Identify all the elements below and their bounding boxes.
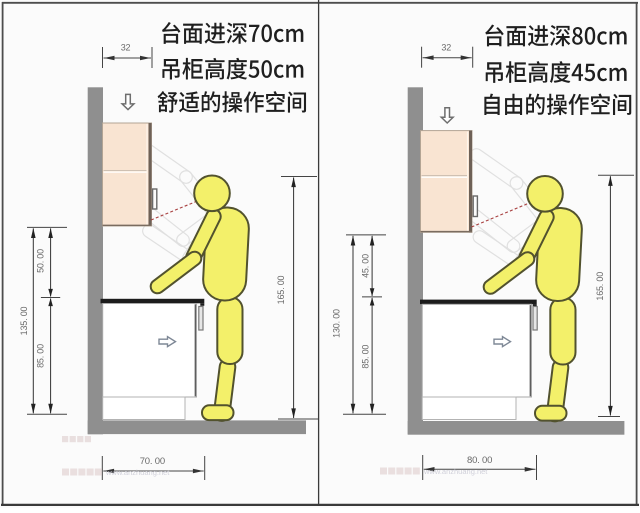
svg-text:www.anzhuang.net: www.anzhuang.net — [423, 467, 488, 476]
svg-text:130. 00: 130. 00 — [332, 309, 342, 338]
svg-text:85. 00: 85. 00 — [361, 345, 371, 369]
svg-text:165. 00: 165. 00 — [595, 272, 605, 301]
svg-text:45. 00: 45. 00 — [361, 254, 371, 278]
svg-text:135. 00: 135. 00 — [19, 306, 29, 335]
svg-text:32: 32 — [121, 42, 131, 52]
svg-text:165. 00: 165. 00 — [276, 275, 286, 304]
svg-text:80. 00: 80. 00 — [467, 455, 492, 466]
svg-text:32: 32 — [441, 42, 451, 52]
svg-text:70. 00: 70. 00 — [140, 456, 165, 467]
svg-text:50. 00: 50. 00 — [36, 249, 46, 273]
svg-text:www.anzhuang.net: www.anzhuang.net — [105, 468, 170, 477]
svg-text:85. 00: 85. 00 — [36, 344, 46, 368]
